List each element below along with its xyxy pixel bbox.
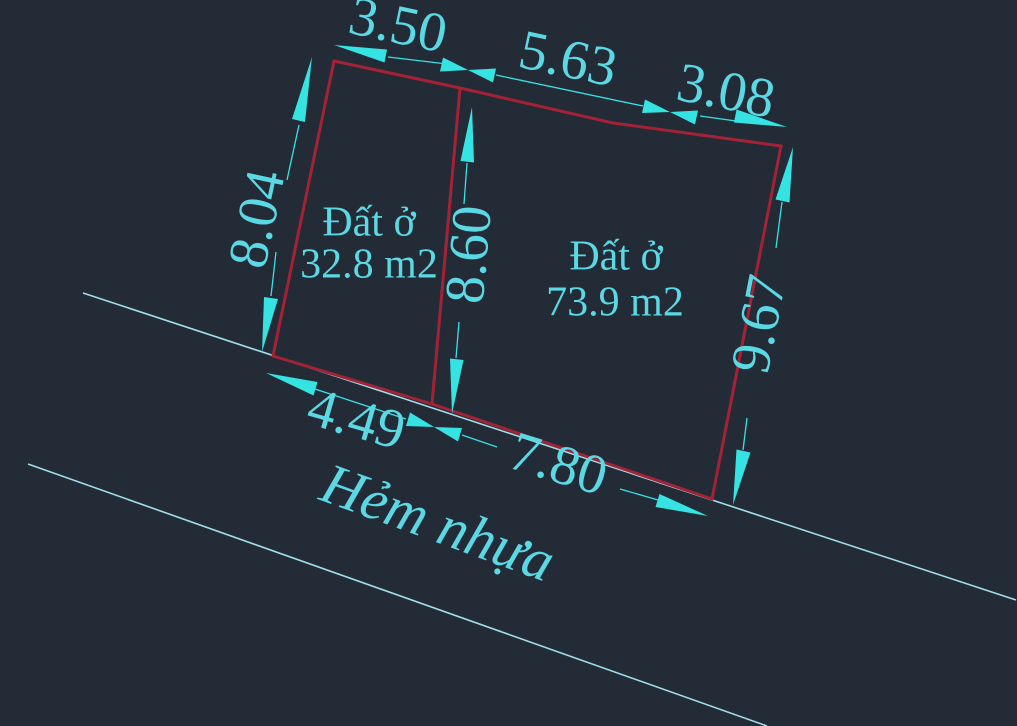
parcel1-area-label: 32.8 m2 xyxy=(300,242,438,288)
dim-label-divider: 8.60 xyxy=(434,203,504,306)
parcel1-type-label: Đất ở xyxy=(322,200,416,246)
site-plan-svg: 3.50 5.63 3.08 8.04 8.60 9.67 4.49 7.80 … xyxy=(0,0,1017,726)
cad-drawing-canvas: 3.50 5.63 3.08 8.04 8.60 9.67 4.49 7.80 … xyxy=(0,0,1017,726)
canvas-background xyxy=(0,0,1017,726)
parcel2-type-label: Đất ở xyxy=(569,234,663,280)
parcel2-area-label: 73.9 m2 xyxy=(546,280,684,326)
